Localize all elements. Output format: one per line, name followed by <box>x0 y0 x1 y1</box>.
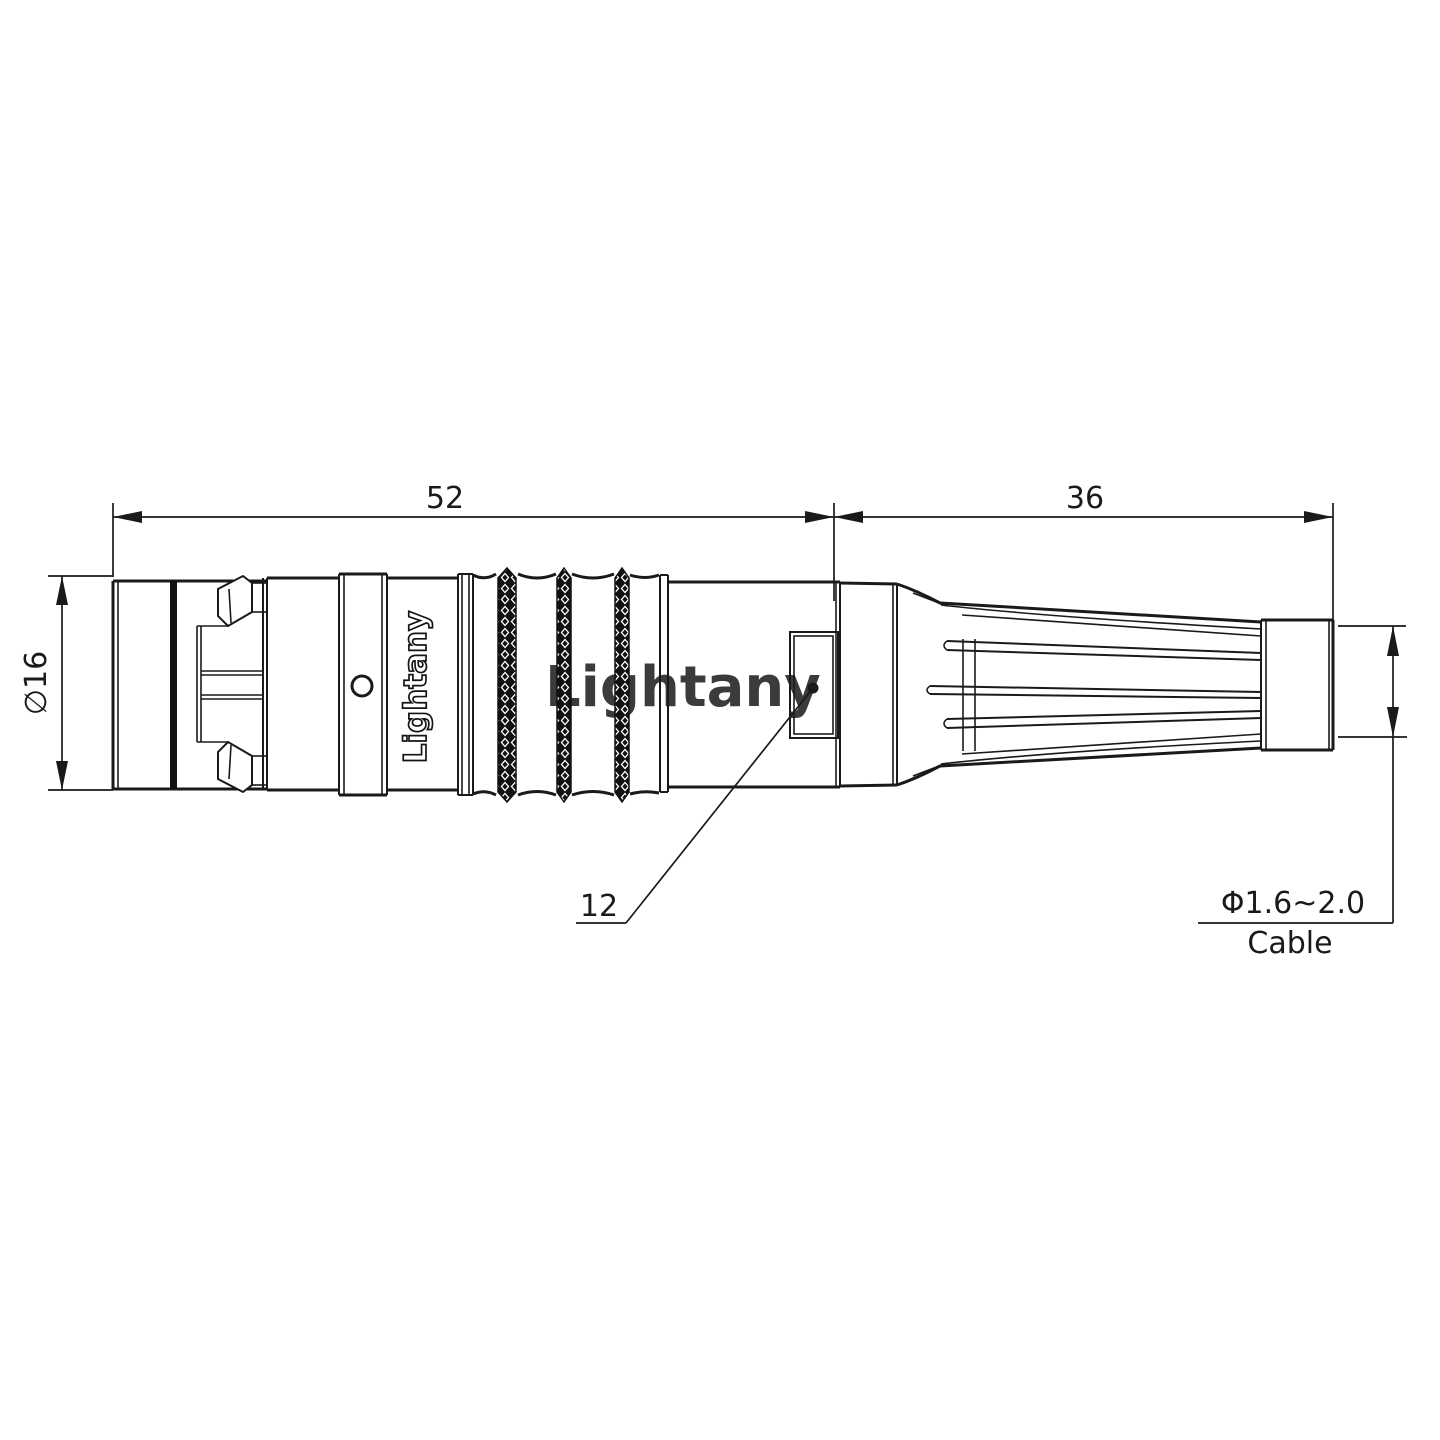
release-hole <box>352 676 372 696</box>
dim-36-label: 36 <box>1066 481 1104 516</box>
body-marking-text: Lightany <box>398 611 434 764</box>
dim-arrow-right <box>1304 511 1333 523</box>
connector-technical-drawing: Lightany 52 36 ∅16 12 <box>0 0 1440 1440</box>
rib-slots <box>927 641 1261 728</box>
marked-section: Lightany <box>387 578 458 790</box>
strain-relief <box>897 584 1261 785</box>
knurl-band <box>615 568 629 802</box>
dim-arrow-up <box>1387 626 1399 656</box>
dimension-36: 36 <box>834 481 1333 620</box>
dim-arrow-up <box>56 576 68 605</box>
cable-boot <box>1261 620 1333 750</box>
latch-tooth-bottom <box>218 742 252 792</box>
latch-slot <box>197 626 263 742</box>
dimension-52: 52 <box>113 481 834 577</box>
dim-arrow-right <box>805 511 834 523</box>
cable-dimension: Φ1.6~2.0 Cable <box>1198 626 1407 961</box>
knurl-band <box>498 568 516 802</box>
dim-arrow-down <box>1387 707 1399 737</box>
dim-52-label: 52 <box>426 481 464 516</box>
cable-label: Cable <box>1247 926 1332 961</box>
dim-arrow-left <box>113 511 142 523</box>
dim-arrow-down <box>56 761 68 790</box>
cable-diameter-label: Φ1.6~2.0 <box>1221 886 1365 921</box>
watermark-text: Lightany <box>545 655 821 720</box>
knurl-band <box>557 568 571 802</box>
dim-16-label: ∅16 <box>19 651 54 715</box>
back-shell <box>840 583 897 786</box>
second-ring <box>458 574 473 795</box>
dim-12-label: 12 <box>580 889 618 924</box>
dim-arrow-left <box>834 511 863 523</box>
front-shell-band <box>170 581 177 789</box>
front-shell <box>113 576 267 792</box>
latch-tooth-top <box>218 576 252 626</box>
technical-drawing-page: Lightany 52 36 ∅16 12 <box>0 0 1440 1440</box>
dimension-diameter-16: ∅16 <box>19 576 113 790</box>
ring-with-hole <box>339 574 387 795</box>
mid-sleeve <box>267 578 339 790</box>
